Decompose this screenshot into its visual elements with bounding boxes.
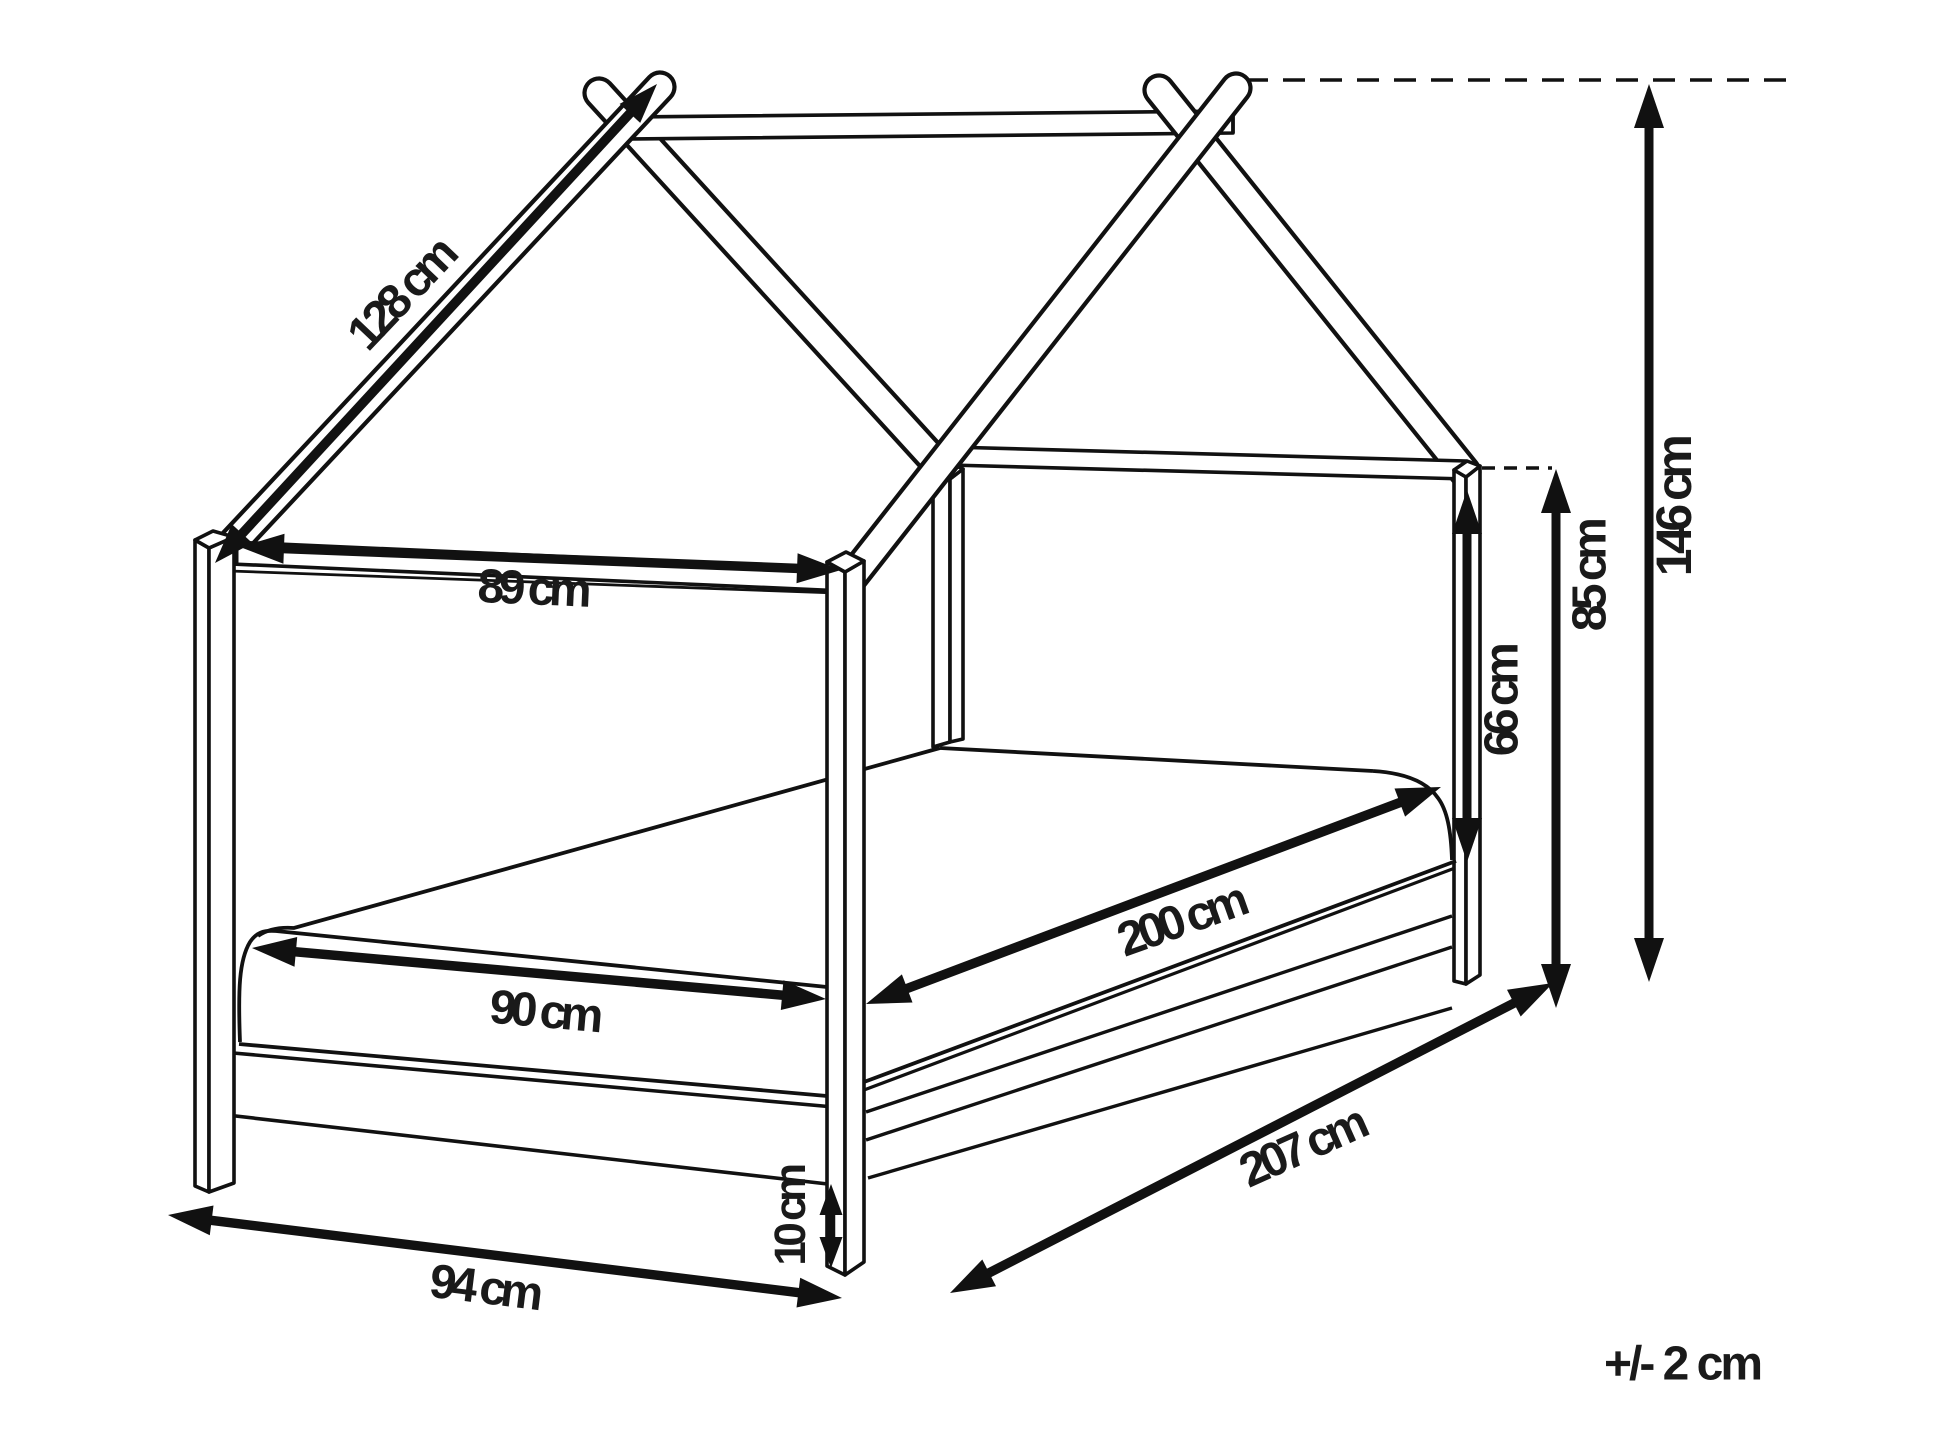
svg-text:+/- 2 cm: +/- 2 cm (1604, 1337, 1760, 1390)
svg-text:10 cm: 10 cm (766, 1165, 815, 1266)
svg-text:85 cm: 85 cm (1563, 520, 1616, 631)
svg-text:66 cm: 66 cm (1475, 645, 1528, 756)
svg-text:146 cm: 146 cm (1646, 437, 1702, 577)
svg-text:89 cm: 89 cm (477, 560, 591, 618)
svg-text:90 cm: 90 cm (487, 981, 603, 1044)
